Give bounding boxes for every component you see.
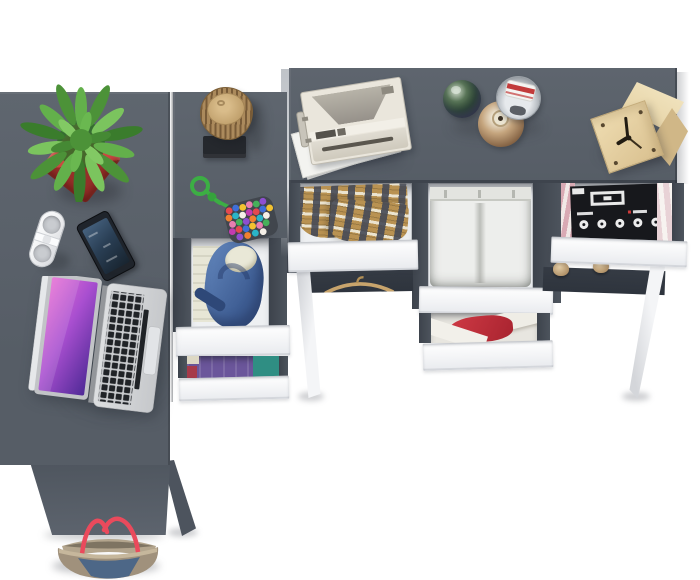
- plaid-shirt-fold: [329, 198, 410, 243]
- clock-marker: [638, 110, 643, 115]
- magazine-red-dot: [628, 210, 631, 213]
- handle-lug: [302, 117, 309, 122]
- magazine-title-block: [590, 191, 624, 206]
- log-knot: [217, 100, 225, 106]
- clock-marker: [600, 123, 605, 128]
- laptop: [22, 276, 172, 418]
- camera-detail: [381, 86, 394, 95]
- teal-cloth: [253, 356, 279, 378]
- drawer-rail: [173, 238, 191, 332]
- open-compartment: [299, 269, 413, 293]
- cream-cloth-edge: [187, 356, 199, 364]
- pink-papers: [657, 183, 672, 242]
- magazine-text-line: [633, 210, 647, 213]
- speaker-grille: [40, 213, 63, 236]
- red-cloth-edge: [187, 366, 197, 378]
- drawer-rail: [419, 313, 431, 343]
- drawer-front: [179, 376, 290, 402]
- wood-log: [200, 87, 253, 140]
- drawer-pants-contents: [428, 183, 533, 289]
- cap-dot: [498, 116, 503, 121]
- vintage-camera: [300, 76, 412, 165]
- drawer-backpack-contents: [191, 238, 269, 330]
- drawer-magazines-contents: [561, 183, 672, 242]
- belt-loop: [512, 190, 515, 198]
- drawer-front: [423, 340, 554, 371]
- magazine-circle-graphic: [597, 219, 606, 228]
- drawer-red-contents: [431, 313, 537, 343]
- vintage-camera-group: [295, 84, 415, 170]
- clock-marker: [613, 160, 618, 165]
- drawer-purple-contents: [187, 356, 279, 378]
- tin-label: [504, 79, 537, 102]
- bead-necklace: [186, 174, 278, 246]
- bead-panel: [222, 194, 278, 245]
- glass-glint: [451, 86, 461, 94]
- tote-bag: [44, 496, 174, 580]
- tin-opening: [509, 105, 526, 117]
- plant-center: [70, 129, 92, 151]
- drawer-front: [419, 286, 553, 315]
- laptop-body-group: [27, 276, 168, 413]
- screen-glint: [88, 231, 98, 237]
- drawer-rail: [537, 313, 550, 343]
- drawer-rail: [672, 183, 684, 245]
- drawer-rail: [178, 356, 187, 378]
- magazine-circle-graphic: [633, 218, 642, 227]
- magazine-circle-graphic: [615, 219, 624, 228]
- cactus-plant: [18, 74, 146, 202]
- belt-loop: [478, 190, 481, 198]
- product-render-stage: Top view of an anthracite grey corner de…: [0, 0, 700, 580]
- black-magazine-cover: [570, 183, 660, 242]
- drawer-front: [176, 325, 291, 357]
- magazine-masthead: [572, 188, 584, 194]
- wooden-hanger: [317, 271, 401, 293]
- folded-white-trousers: [430, 187, 531, 287]
- magazine-circle-graphic: [579, 220, 588, 229]
- magazine-text-line: [577, 212, 593, 216]
- drawer-front: [551, 237, 688, 268]
- screen-glint: [103, 243, 111, 249]
- hanger-bar: [326, 283, 393, 292]
- drawer-plaid-contents: [300, 183, 412, 243]
- camera-detail: [337, 128, 346, 136]
- wooden-knob: [553, 262, 569, 276]
- magazine-title-mark: [603, 196, 611, 200]
- wooden-cube-clock: [598, 82, 690, 174]
- perfume-bottle-green: [443, 80, 481, 118]
- trouser-crease: [474, 203, 486, 283]
- drawer-front: [288, 240, 419, 273]
- log-top-face: [205, 91, 247, 128]
- clock-marker: [651, 147, 656, 152]
- belt-loop: [444, 190, 447, 198]
- screen-glint: [106, 255, 118, 262]
